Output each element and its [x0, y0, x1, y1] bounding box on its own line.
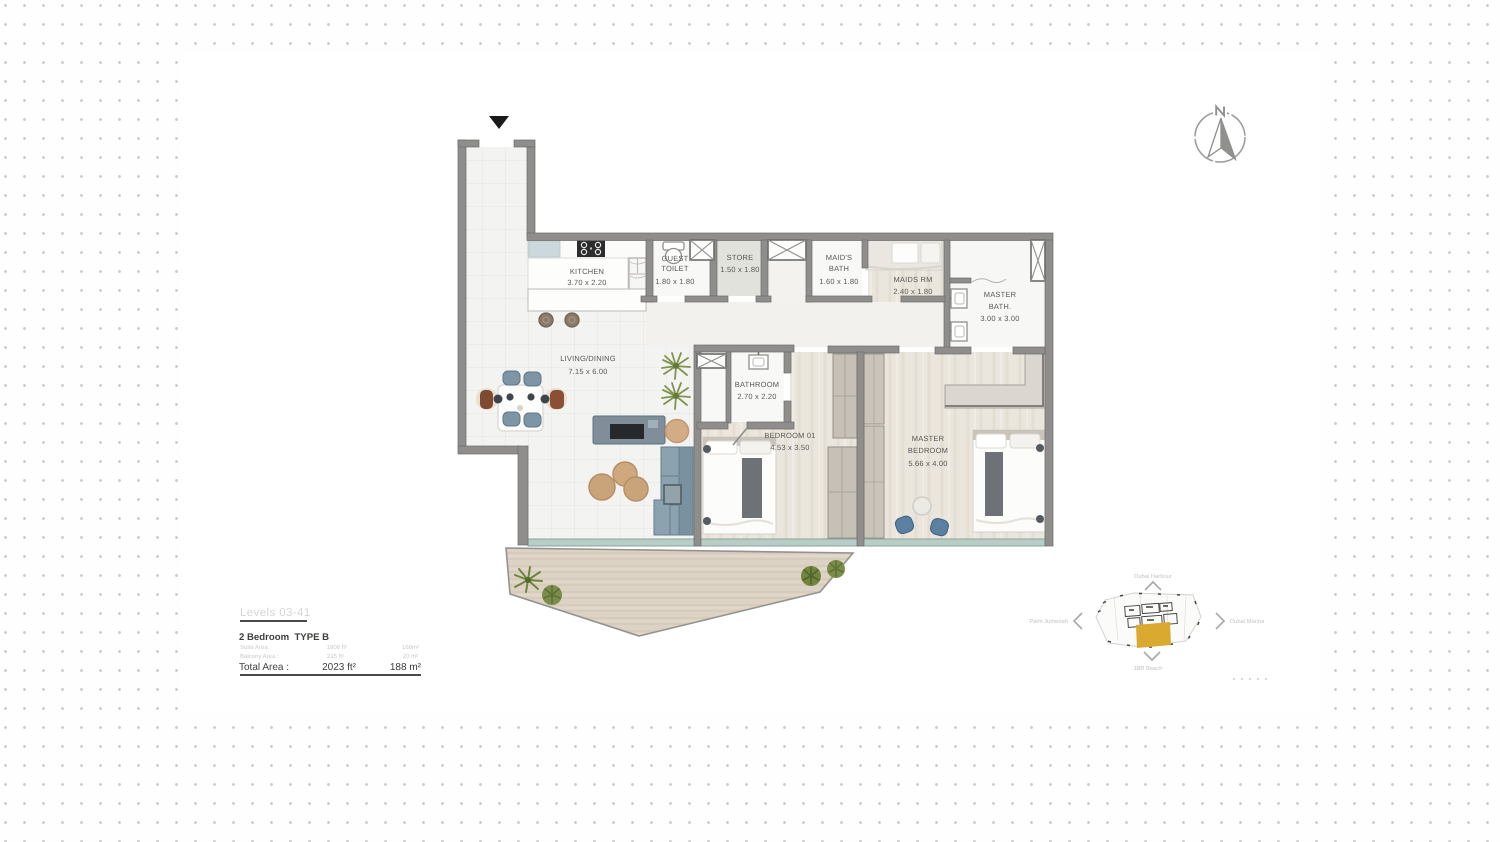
svg-text:GUEST: GUEST [662, 254, 689, 263]
svg-text:3.00 x 3.00: 3.00 x 3.00 [980, 314, 1019, 323]
svg-text:1808 ft²: 1808 ft² [327, 644, 347, 651]
svg-text:5.66 x 4.00: 5.66 x 4.00 [908, 459, 947, 468]
svg-text:MAID'S: MAID'S [826, 253, 852, 262]
svg-text:Levels 03-41: Levels 03-41 [240, 607, 311, 619]
svg-text:JBR Beach: JBR Beach [1134, 665, 1163, 672]
svg-text:Suite Area :: Suite Area : [240, 644, 271, 651]
svg-text:BATH: BATH [829, 264, 849, 273]
svg-text:Total Area :: Total Area : [239, 662, 289, 673]
svg-text:BATHROOM: BATHROOM [735, 380, 779, 389]
svg-text:LIVING/DINING: LIVING/DINING [560, 354, 616, 363]
svg-text:Palm Jumeirah: Palm Jumeirah [1029, 618, 1068, 625]
svg-text:2.70 x 2.20: 2.70 x 2.20 [737, 392, 776, 401]
svg-text:MASTER: MASTER [912, 434, 945, 443]
svg-text:3.70 x 2.20: 3.70 x 2.20 [567, 278, 606, 287]
svg-text:1.50 x 1.80: 1.50 x 1.80 [720, 265, 759, 274]
svg-text:Balcony Area :: Balcony Area : [240, 653, 279, 660]
svg-text:MAIDS RM: MAIDS RM [893, 275, 932, 284]
svg-text:215 ft²: 215 ft² [327, 653, 344, 660]
svg-text:Dubai Marina: Dubai Marina [1230, 618, 1265, 625]
svg-text:2 Bedroom TYPE B: 2 Bedroom TYPE B [239, 632, 329, 643]
svg-text:BEDROOM 01: BEDROOM 01 [764, 431, 815, 440]
svg-text:BEDROOM: BEDROOM [908, 446, 948, 455]
svg-text:2.40 x 1.80: 2.40 x 1.80 [893, 287, 932, 296]
svg-text:188 m²: 188 m² [390, 662, 422, 673]
svg-text:20 m²: 20 m² [403, 653, 418, 660]
svg-text:4.53 x 3.50: 4.53 x 3.50 [770, 443, 809, 452]
svg-text:1.80 x 1.80: 1.80 x 1.80 [655, 277, 694, 286]
svg-text:MASTER: MASTER [984, 290, 1017, 299]
svg-text:Dubai Harbour: Dubai Harbour [1134, 573, 1172, 580]
svg-text:7.15 x 6.00: 7.15 x 6.00 [568, 367, 607, 376]
svg-text:TOILET: TOILET [661, 264, 689, 273]
svg-text:2023 ft²: 2023 ft² [322, 662, 357, 673]
svg-text:BATH.: BATH. [989, 302, 1012, 311]
svg-text:168m²: 168m² [402, 644, 419, 651]
svg-text:STORE: STORE [727, 253, 754, 262]
svg-text:1.60 x 1.80: 1.60 x 1.80 [819, 277, 858, 286]
svg-text:KITCHEN: KITCHEN [570, 267, 604, 276]
